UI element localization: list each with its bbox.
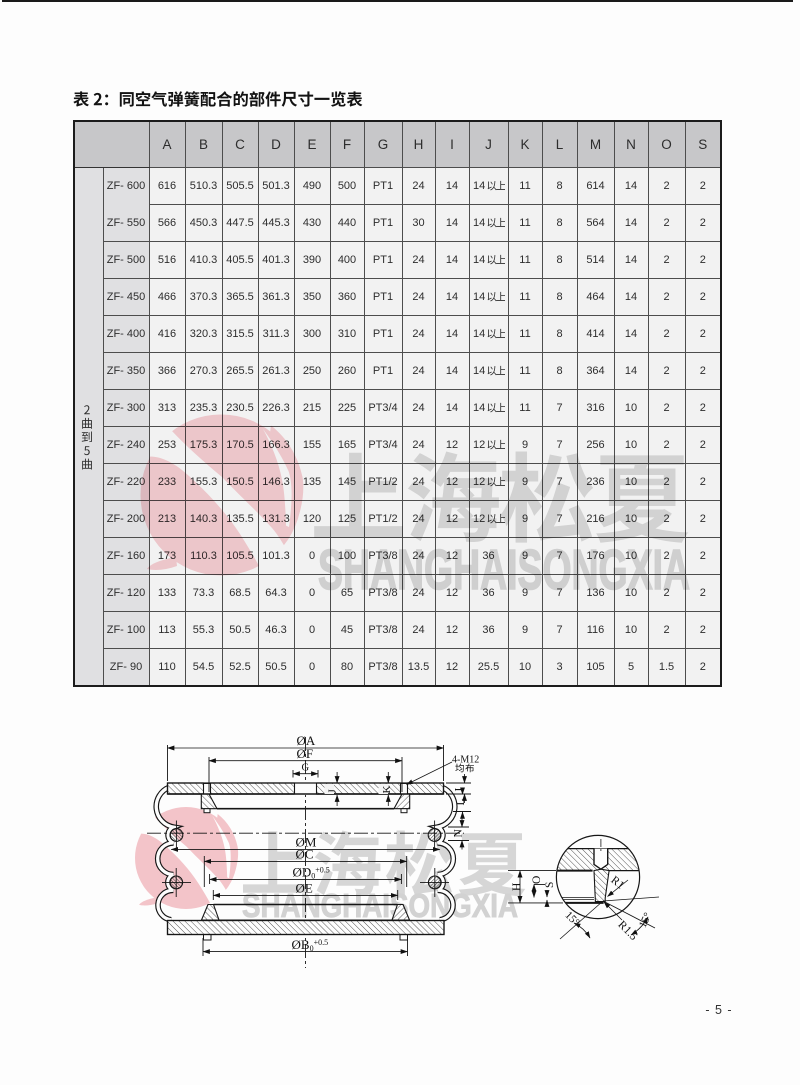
svg-text:ØE: ØE — [296, 880, 313, 895]
svg-text:K: K — [381, 786, 393, 794]
svg-text:G: G — [302, 763, 310, 774]
svg-text:12: 12 — [473, 513, 485, 525]
svg-text:I: I — [454, 788, 466, 792]
svg-text:15°: 15° — [637, 911, 654, 930]
svg-text:O: O — [531, 876, 543, 884]
svg-text:14: 14 — [473, 365, 485, 377]
svg-text:12: 12 — [473, 439, 485, 451]
svg-text:14: 14 — [473, 328, 485, 340]
svg-text:ØB0+0.5: ØB0+0.5 — [292, 937, 329, 953]
svg-text:12: 12 — [473, 476, 485, 488]
svg-text:L: L — [455, 798, 467, 805]
svg-text:ØD0+0.5: ØD0+0.5 — [293, 864, 330, 880]
svg-text:H: H — [511, 883, 523, 891]
svg-text:14: 14 — [473, 180, 485, 192]
svg-text:14: 14 — [473, 402, 485, 414]
svg-text:14: 14 — [473, 291, 485, 303]
svg-text:R1.5: R1.5 — [615, 919, 639, 943]
svg-text:4-M12: 4-M12 — [452, 755, 479, 766]
svg-text:J: J — [327, 789, 339, 794]
svg-text:ØC: ØC — [296, 846, 314, 861]
svg-text:N: N — [453, 829, 465, 838]
svg-text:14: 14 — [473, 217, 485, 229]
svg-text:14: 14 — [473, 254, 485, 266]
svg-text:S: S — [544, 882, 556, 888]
svg-text:R1: R1 — [608, 874, 626, 892]
svg-text:ØF: ØF — [297, 746, 314, 761]
